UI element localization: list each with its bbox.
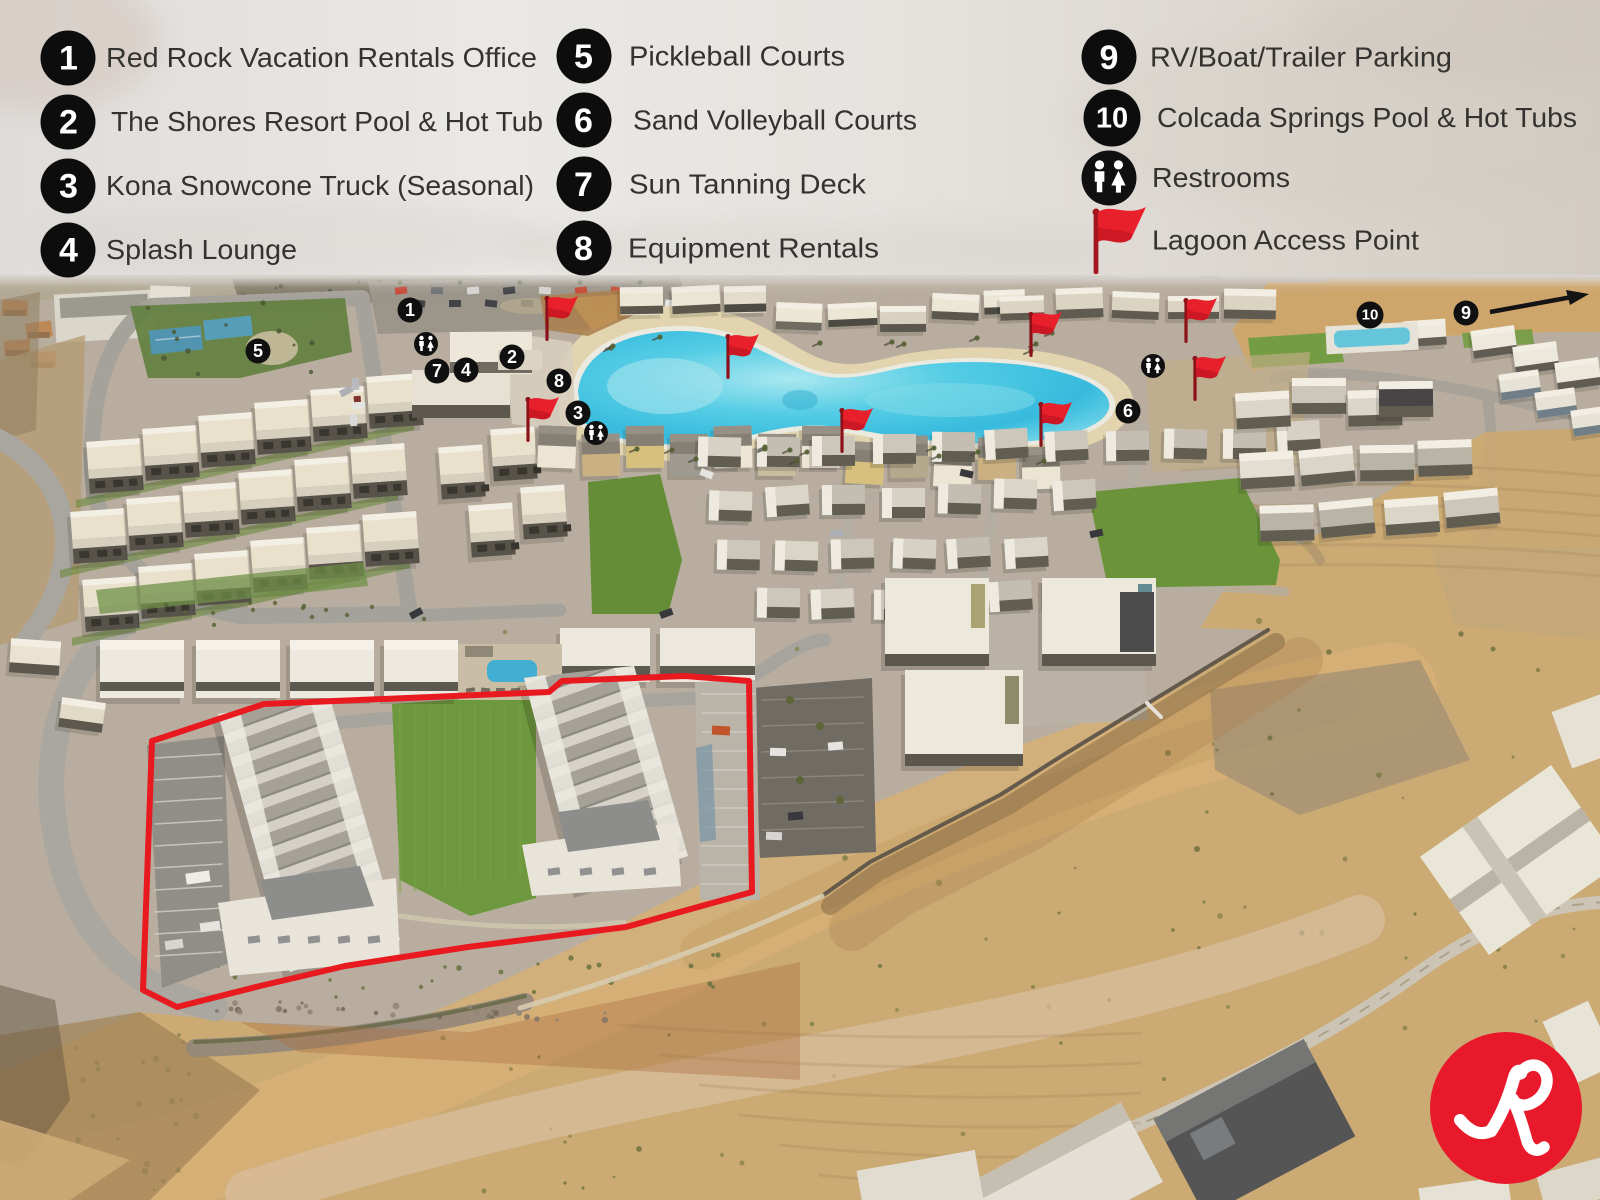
- svg-text:10: 10: [1096, 103, 1128, 135]
- svg-text:Restrooms: Restrooms: [1152, 162, 1290, 193]
- svg-text:Red Rock Vacation Rentals Offi: Red Rock Vacation Rentals Office: [106, 42, 537, 73]
- svg-text:RV/Boat/Trailer Parking: RV/Boat/Trailer Parking: [1150, 42, 1452, 73]
- svg-text:3: 3: [573, 403, 583, 423]
- svg-text:6: 6: [1123, 401, 1133, 421]
- svg-text:Lagoon Access Point: Lagoon Access Point: [1152, 225, 1419, 256]
- svg-text:The Shores Resort Pool & Hot T: The Shores Resort Pool & Hot Tub: [111, 106, 543, 137]
- svg-text:5: 5: [574, 38, 593, 76]
- svg-text:Sun Tanning Deck: Sun Tanning Deck: [629, 169, 867, 200]
- svg-text:Pickleball Courts: Pickleball Courts: [629, 41, 845, 72]
- svg-text:9: 9: [1100, 39, 1119, 77]
- svg-text:4: 4: [59, 232, 78, 270]
- svg-text:1: 1: [405, 300, 415, 320]
- svg-text:Kona Snowcone Truck (Seasonal): Kona Snowcone Truck (Seasonal): [106, 170, 534, 201]
- svg-text:6: 6: [574, 102, 593, 140]
- svg-text:4: 4: [461, 360, 471, 380]
- svg-text:2: 2: [59, 104, 78, 142]
- svg-text:8: 8: [574, 230, 593, 268]
- svg-text:9: 9: [1461, 303, 1471, 323]
- svg-text:7: 7: [432, 361, 442, 381]
- svg-text:3: 3: [59, 168, 78, 206]
- svg-text:10: 10: [1362, 307, 1379, 324]
- svg-text:2: 2: [507, 347, 517, 367]
- svg-text:1: 1: [59, 40, 78, 78]
- svg-text:Sand Volleyball Courts: Sand Volleyball Courts: [633, 105, 917, 136]
- svg-text:5: 5: [253, 341, 263, 361]
- svg-text:Colcada Springs Pool & Hot Tub: Colcada Springs Pool & Hot Tubs: [1157, 102, 1577, 133]
- svg-text:8: 8: [554, 371, 564, 391]
- svg-text:Splash Lounge: Splash Lounge: [106, 234, 297, 265]
- svg-text:7: 7: [574, 166, 593, 204]
- svg-text:Equipment Rentals: Equipment Rentals: [628, 233, 879, 264]
